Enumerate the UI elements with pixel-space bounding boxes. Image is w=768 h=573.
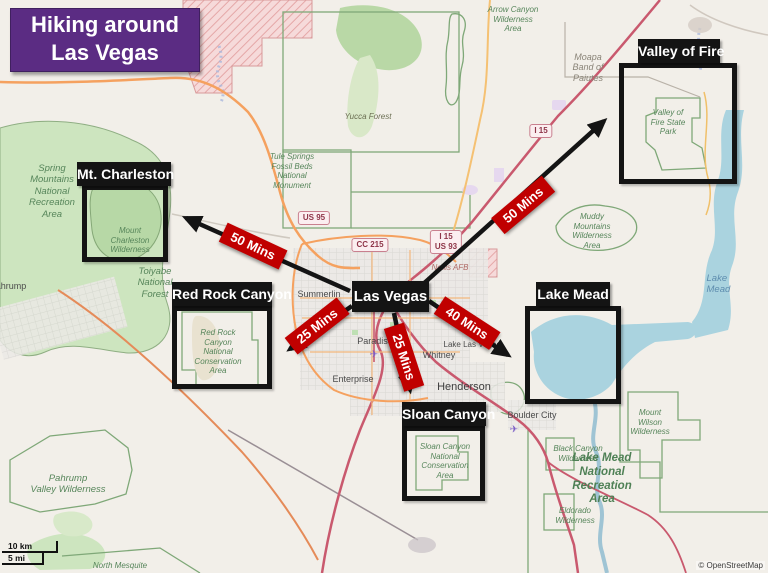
map-label-spring-mountains: Spring Mountains National Recreation Are…	[29, 163, 75, 220]
place-label-boulder-city: Boulder City	[507, 410, 556, 420]
map-title-line1: Hiking around	[11, 11, 199, 39]
road-shield-i15-us93: I 15 US 93	[430, 230, 462, 254]
dest-label-sloan-canyon: Sloan Canyon	[402, 402, 486, 426]
place-label-nellis-afb: Nellis AFB	[431, 263, 468, 272]
road-shield-us95: US 95	[298, 211, 330, 225]
area-box-lake-mead	[525, 306, 621, 404]
dest-label-valley-of-fire: Valley of Fire	[638, 39, 720, 63]
osm-attribution[interactable]: © OpenStreetMap	[696, 561, 765, 570]
time-badge-sloan-canyon: 25 Mins	[384, 323, 424, 392]
map-canvas: Arrow Canyon Wilderness Area Tule Spring…	[0, 0, 768, 573]
road-shield-cc215: CC 215	[351, 238, 388, 252]
road-shield-i15: I 15	[529, 124, 552, 138]
map-label-lake-mead-nra: Lake Mead National Recreation Area	[572, 452, 631, 507]
scale-bar: 10 km 5 mi	[2, 541, 58, 565]
water-label-lake-mead: Lake Mead	[707, 273, 748, 295]
area-box-mt-charleston	[82, 185, 168, 262]
map-label-toiyabe: Toiyabe National Forest	[138, 266, 173, 300]
map-label-yucca-forest: Yucca Forest	[345, 112, 392, 122]
place-label-enterprise: Enterprise	[332, 374, 373, 384]
place-label-pahrump: Pahrump	[0, 281, 26, 291]
map-label-mount-wilson: Mount Wilson Wilderness	[630, 408, 670, 437]
scale-bar-mi: 5 mi	[2, 553, 44, 565]
map-label-muddy-mountains: Muddy Mountains Wilderness Area	[572, 212, 612, 250]
time-badge-red-rock: 25 Mins	[285, 298, 350, 355]
place-label-whitney: Whitney	[423, 350, 456, 360]
origin-label-las-vegas: Las Vegas	[352, 281, 429, 312]
map-label-pahrump-valley: Pahrump Valley Wilderness	[30, 473, 105, 496]
area-box-sloan-canyon	[402, 426, 485, 501]
map-title-line2: Las Vegas	[11, 39, 199, 67]
place-label-moapa: Moapa Band of Paiutes	[572, 52, 603, 83]
map-label-north-mesquite: North Mesquite	[93, 561, 147, 571]
dest-label-lake-mead: Lake Mead	[536, 282, 610, 306]
airport-icon: ✈	[370, 350, 378, 361]
map-label-eldorado: Eldorado Wilderness	[555, 506, 595, 525]
area-box-valley-of-fire	[619, 63, 737, 184]
time-badge-mt-charleston: 50 Mins	[219, 223, 287, 270]
map-label-tule-springs: Tule Springs Fossil Beds National Monume…	[270, 152, 314, 190]
area-box-red-rock-canyon	[172, 306, 272, 389]
time-badge-valley-of-fire: 50 Mins	[491, 176, 555, 234]
place-label-henderson: Henderson	[437, 381, 491, 394]
dest-label-red-rock-canyon: Red Rock Canyon	[172, 282, 272, 306]
dest-label-mt-charleston: Mt. Charleston	[77, 162, 171, 186]
airport-icon: ✈	[510, 425, 518, 436]
scale-bar-km: 10 km	[2, 541, 58, 553]
map-label-arrow-canyon: Arrow Canyon Wilderness Area	[488, 5, 539, 34]
map-title: Hiking around Las Vegas	[10, 8, 200, 72]
